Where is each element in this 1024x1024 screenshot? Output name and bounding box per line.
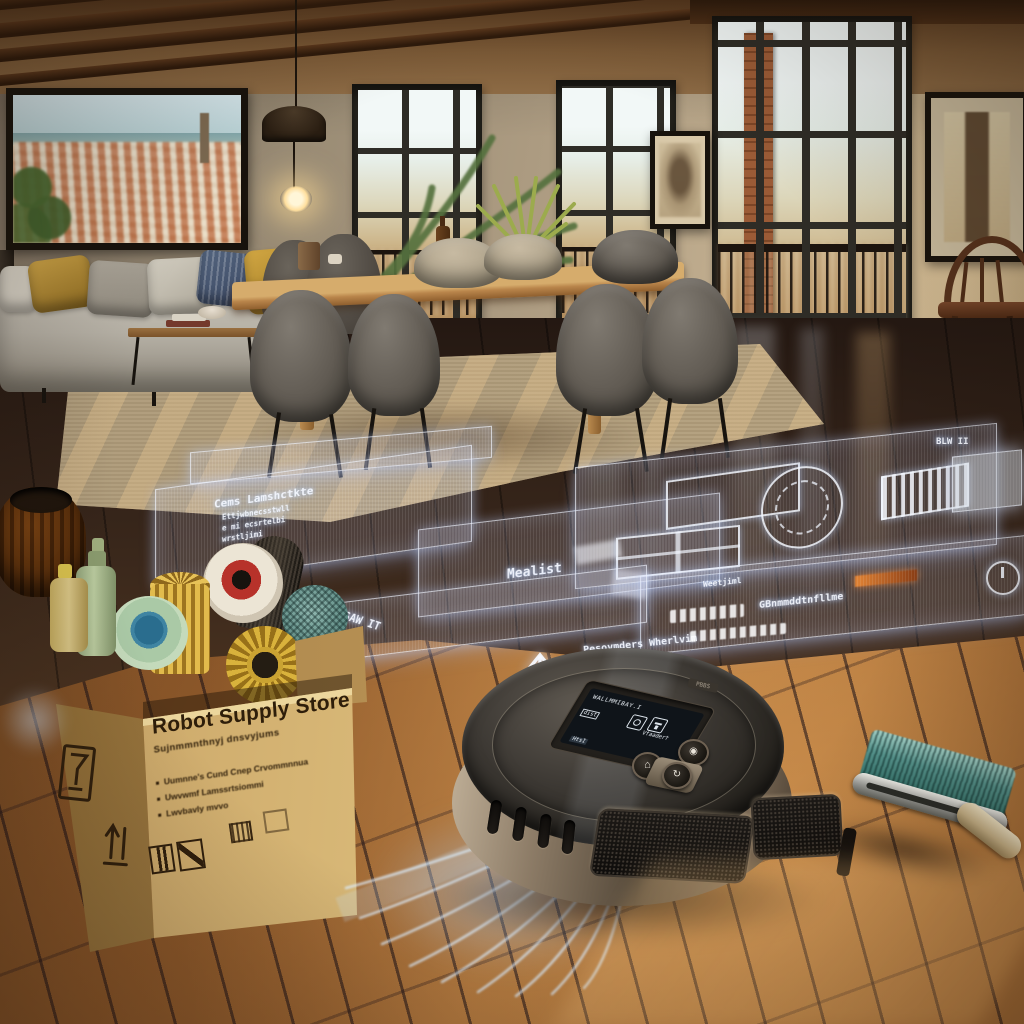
robot-power-button: ↻ bbox=[662, 762, 692, 789]
roller-green-blue bbox=[110, 596, 188, 670]
dining-chair-back bbox=[592, 230, 678, 284]
robot-front-mesh bbox=[589, 808, 755, 884]
wicker-basket-opening bbox=[10, 487, 72, 513]
this-way-up-icon bbox=[100, 813, 134, 867]
bullet-dot bbox=[156, 782, 159, 785]
coffee-table bbox=[128, 328, 258, 337]
pillow-gray bbox=[86, 260, 156, 318]
table-cup bbox=[328, 254, 342, 264]
holo-top-tag: BLW II bbox=[936, 437, 969, 447]
holo-brush-disc-icon bbox=[761, 462, 843, 553]
chair-spindle bbox=[980, 258, 984, 308]
bullet-dot bbox=[157, 798, 160, 801]
decor-bowl bbox=[198, 306, 226, 319]
pillow-mustard bbox=[27, 254, 96, 314]
holo-label-small: Weetjiml bbox=[703, 576, 742, 589]
lamp-rod bbox=[293, 140, 295, 190]
holo-label-list: GBnmmddtnfllme bbox=[759, 591, 843, 611]
holo-power-icon bbox=[986, 561, 1020, 595]
tower-framed-print bbox=[925, 92, 1024, 262]
sofa-leg bbox=[152, 392, 156, 406]
holo-tray-icon bbox=[666, 462, 800, 530]
cityscape-painting bbox=[6, 88, 248, 250]
holo-info-line: Ettjwbnecsstwll bbox=[222, 503, 290, 522]
books-stack bbox=[166, 320, 210, 327]
box-mark-icon bbox=[148, 843, 176, 874]
dining-chair-back bbox=[484, 234, 562, 280]
roller-white-red bbox=[203, 543, 283, 623]
holo-orange-accent bbox=[855, 569, 917, 587]
robot-screen-tag: dist bbox=[579, 709, 600, 720]
painting-cathedral-tower bbox=[200, 113, 209, 163]
lamp-bulb-glow bbox=[280, 186, 312, 212]
floor-glint bbox=[0, 680, 70, 760]
bottle-yellow bbox=[50, 578, 88, 652]
holo-bright-pane bbox=[952, 449, 1022, 512]
robot-screen-title: WALLMMIBAY.I bbox=[591, 694, 643, 711]
lamp-cord bbox=[295, 0, 297, 110]
sketch-art bbox=[659, 143, 701, 217]
small-framed-print bbox=[650, 131, 710, 229]
holo-info-line: e mi ecsrtelbi bbox=[222, 515, 285, 533]
box-stamp-icon bbox=[263, 808, 290, 833]
robot-screen-bottom: HtsI bbox=[569, 736, 589, 745]
box-mark-icon bbox=[176, 838, 206, 871]
wood-beam bbox=[0, 0, 747, 65]
screen-icon-camera bbox=[626, 714, 649, 731]
lamp-shade bbox=[262, 106, 326, 142]
holo-info-title: Cems Lamshctkte bbox=[214, 484, 313, 511]
tower-art bbox=[944, 112, 1010, 242]
table-jar bbox=[298, 242, 320, 270]
living-room-scene: Cems Lamshctkte Ettjwbnecsstwll e mi ecs… bbox=[0, 0, 1024, 1024]
bottle-cap-yellow bbox=[58, 564, 72, 579]
robot-screen-sub: Vfaaderf bbox=[640, 731, 669, 742]
sofa-leg bbox=[42, 388, 46, 403]
bullet-dot bbox=[158, 814, 161, 817]
barcode-icon bbox=[229, 821, 254, 844]
